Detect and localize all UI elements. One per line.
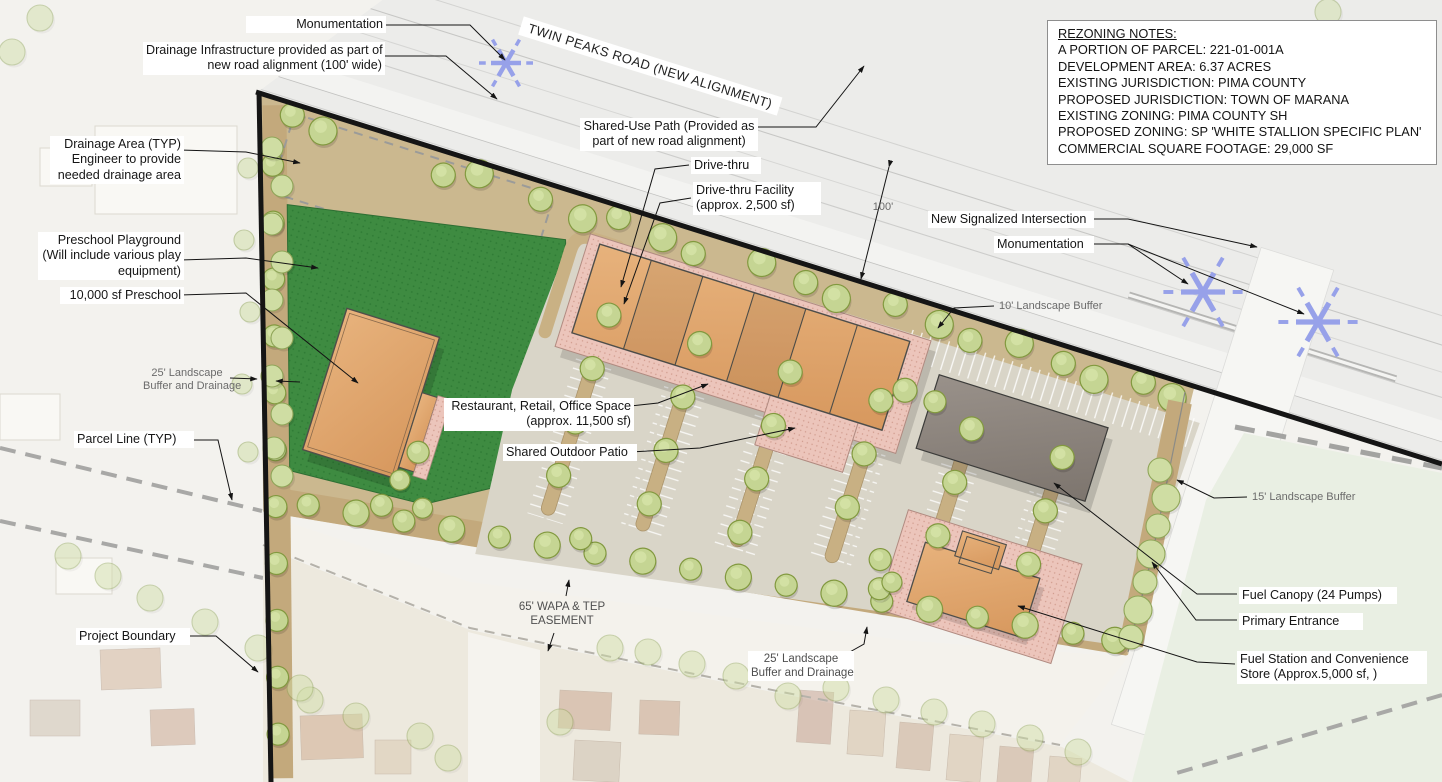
callout-parcel-line: Parcel Line (TYP) bbox=[74, 431, 194, 448]
rezoning-note-line: A PORTION OF PARCEL: 221-01-001A bbox=[1058, 42, 1426, 58]
callout-line: Parcel Line (TYP) bbox=[77, 432, 191, 447]
callout-line: Shared-Use Path (Provided as bbox=[583, 119, 755, 134]
callout-shared-outdoor-patio: Shared Outdoor Patio bbox=[503, 444, 637, 461]
callout-line: Fuel Canopy (24 Pumps) bbox=[1242, 588, 1394, 603]
callout-line: 25' Landscape bbox=[751, 652, 851, 666]
callout-drainage-area: Drainage Area (TYP)Engineer to providene… bbox=[50, 136, 184, 184]
callout-line: 10' Landscape Buffer bbox=[999, 300, 1111, 313]
callout-line: equipment) bbox=[41, 264, 181, 279]
dimension-100ft-label: 100' bbox=[862, 200, 904, 215]
callout-line: New Signalized Intersection bbox=[931, 212, 1091, 227]
rezoning-note-line: EXISTING ZONING: PIMA COUNTY SH bbox=[1058, 108, 1426, 124]
rezoning-note-line: EXISTING JURISDICTION: PIMA COUNTY bbox=[1058, 75, 1426, 91]
callout-line: new road alignment (100' wide) bbox=[146, 58, 382, 73]
callout-landscape-buffer-10: 10' Landscape Buffer bbox=[996, 299, 1114, 314]
callout-line: Store (Approx.5,000 sf, ) bbox=[1240, 667, 1424, 682]
callout-line: Fuel Station and Convenience bbox=[1240, 652, 1424, 667]
callout-drainage-infrastructure: Drainage Infrastructure provided as part… bbox=[143, 42, 385, 75]
callout-shared-use-path: Shared-Use Path (Provided aspart of new … bbox=[580, 118, 758, 151]
callout-line: needed drainage area bbox=[53, 168, 181, 183]
callout-line: Monumentation bbox=[249, 17, 383, 32]
callout-landscape-buffer-25-left: 25' LandscapeBuffer and Drainage bbox=[140, 366, 234, 395]
callout-line: Drive-thru Facility bbox=[696, 183, 818, 198]
callout-line: 25' Landscape bbox=[143, 367, 231, 380]
rezoning-note-line: DEVELOPMENT AREA: 6.37 ACRES bbox=[1058, 59, 1426, 75]
callout-landscape-buffer-15: 15' Landscape Buffer bbox=[1249, 490, 1361, 505]
callout-line: Drive-thru bbox=[694, 158, 758, 173]
callout-preschool-playground: Preschool Playground(Will include variou… bbox=[38, 232, 184, 280]
callout-line: (approx. 11,500 sf) bbox=[447, 414, 631, 429]
callout-line: Drainage Infrastructure provided as part… bbox=[146, 43, 382, 58]
callout-line: Shared Outdoor Patio bbox=[506, 445, 634, 460]
callout-line: Engineer to provide bbox=[53, 152, 181, 167]
callout-landscape-buffer-25-bottom: 25' LandscapeBuffer and Drainage bbox=[748, 651, 854, 681]
rezoning-notes-title: REZONING NOTES: bbox=[1058, 26, 1426, 42]
callout-monumentation-tl: Monumentation bbox=[246, 16, 386, 33]
callout-line: Monumentation bbox=[997, 237, 1091, 252]
callout-restaurant-retail-office: Restaurant, Retail, Office Space(approx.… bbox=[444, 398, 634, 431]
callout-line: Drainage Area (TYP) bbox=[53, 137, 181, 152]
callout-drive-thru: Drive-thru bbox=[691, 157, 761, 174]
callout-line: 10,000 sf Preschool bbox=[63, 288, 181, 303]
callout-new-signalized-intersection: New Signalized Intersection bbox=[928, 211, 1094, 228]
rezoning-note-line: COMMERCIAL SQUARE FOOTAGE: 29,000 SF bbox=[1058, 141, 1426, 157]
callout-monumentation-right: Monumentation bbox=[994, 236, 1094, 253]
callout-fuel-station: Fuel Station and ConvenienceStore (Appro… bbox=[1237, 651, 1427, 684]
callout-line: Primary Entrance bbox=[1242, 614, 1360, 629]
callout-line: 15' Landscape Buffer bbox=[1252, 491, 1358, 504]
callout-project-boundary: Project Boundary bbox=[76, 628, 190, 645]
callout-preschool: 10,000 sf Preschool bbox=[60, 287, 184, 304]
callout-line: Buffer and Drainage bbox=[751, 666, 851, 680]
site-plan-page: TWIN PEAKS ROAD (NEW ALIGNMENT) REZONING… bbox=[0, 0, 1442, 782]
callout-line: Buffer and Drainage bbox=[143, 380, 231, 393]
callout-fuel-canopy: Fuel Canopy (24 Pumps) bbox=[1239, 587, 1397, 604]
rezoning-notes-box: REZONING NOTES: A PORTION OF PARCEL: 221… bbox=[1047, 20, 1437, 165]
callout-primary-entrance: Primary Entrance bbox=[1239, 613, 1363, 630]
callout-line: (Will include various play bbox=[41, 248, 181, 263]
callout-line: Preschool Playground bbox=[41, 233, 181, 248]
callout-line: Restaurant, Retail, Office Space bbox=[447, 399, 631, 414]
callout-drive-thru-facility: Drive-thru Facility(approx. 2,500 sf) bbox=[693, 182, 821, 215]
callout-line: 65' WAPA & TEP bbox=[513, 600, 611, 614]
callout-wapa-tep-easement: 65' WAPA & TEPEASEMENT bbox=[510, 599, 614, 629]
callout-line: Project Boundary bbox=[79, 629, 187, 644]
rezoning-note-line: PROPOSED ZONING: SP 'WHITE STALLION SPEC… bbox=[1058, 124, 1426, 140]
rezoning-note-line: PROPOSED JURISDICTION: TOWN OF MARANA bbox=[1058, 92, 1426, 108]
callout-line: EASEMENT bbox=[513, 614, 611, 628]
callout-line: part of new road alignment) bbox=[583, 134, 755, 149]
callout-line: (approx. 2,500 sf) bbox=[696, 198, 818, 213]
